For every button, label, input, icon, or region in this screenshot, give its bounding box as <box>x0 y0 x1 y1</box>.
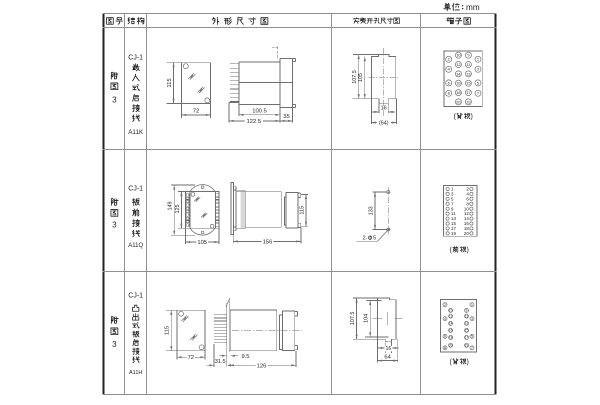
svg-text:3: 3 <box>471 317 473 321</box>
svg-text:9: 9 <box>466 309 468 313</box>
svg-text:72: 72 <box>193 109 199 115</box>
svg-text:15: 15 <box>465 329 469 333</box>
svg-text:125: 125 <box>175 205 181 214</box>
svg-text:mm: mm <box>466 3 480 12</box>
svg-text:8: 8 <box>444 346 446 350</box>
svg-text:1: 1 <box>477 57 479 62</box>
svg-text:3: 3 <box>112 95 117 104</box>
svg-text:1: 1 <box>471 303 473 307</box>
svg-text:104: 104 <box>363 314 369 323</box>
svg-text:5: 5 <box>471 335 473 339</box>
svg-text:133: 133 <box>368 206 374 215</box>
svg-text:100.5: 100.5 <box>252 108 267 114</box>
svg-text:A11Q: A11Q <box>128 243 143 249</box>
svg-text:107.5: 107.5 <box>350 312 356 326</box>
svg-text:16: 16 <box>381 105 387 111</box>
svg-text:15: 15 <box>466 81 470 86</box>
svg-text:18: 18 <box>449 336 453 340</box>
svg-text:12: 12 <box>449 314 453 318</box>
svg-text:A11K: A11K <box>128 129 144 136</box>
svg-text:115: 115 <box>167 78 173 87</box>
svg-text:72: 72 <box>188 355 194 361</box>
svg-text:CJ-1: CJ-1 <box>128 55 143 62</box>
svg-text:19: 19 <box>465 344 469 348</box>
svg-text:107.5: 107.5 <box>352 70 358 84</box>
svg-text:13: 13 <box>465 322 469 326</box>
svg-text:(64): (64) <box>379 121 389 127</box>
svg-text:115: 115 <box>299 206 305 215</box>
svg-text:9: 9 <box>467 53 469 58</box>
svg-text:5: 5 <box>373 235 376 241</box>
svg-text:3: 3 <box>112 221 117 230</box>
svg-text:6: 6 <box>444 335 446 339</box>
svg-text:7: 7 <box>477 91 479 96</box>
svg-text:126: 126 <box>257 363 267 369</box>
svg-text:14: 14 <box>449 322 453 326</box>
svg-text:): ) <box>467 359 469 366</box>
svg-text:8: 8 <box>448 91 450 96</box>
svg-text:3: 3 <box>112 340 117 349</box>
svg-text:105: 105 <box>197 240 207 246</box>
svg-text:19: 19 <box>466 99 470 104</box>
svg-text:2: 2 <box>448 57 450 62</box>
svg-text:19: 19 <box>451 231 456 236</box>
svg-text:7: 7 <box>471 346 473 350</box>
svg-text:A11H: A11H <box>129 370 142 376</box>
svg-text:10: 10 <box>449 309 453 313</box>
svg-text:11: 11 <box>465 314 469 318</box>
svg-text:13: 13 <box>466 71 470 76</box>
svg-text:16: 16 <box>456 81 460 86</box>
svg-text:35: 35 <box>283 114 289 120</box>
svg-text:122.5: 122.5 <box>247 119 262 125</box>
svg-text:3: 3 <box>477 67 479 72</box>
svg-text:115: 115 <box>165 326 171 335</box>
svg-text:6: 6 <box>448 80 450 85</box>
svg-text:18: 18 <box>456 90 460 95</box>
svg-text:105: 105 <box>358 73 364 82</box>
svg-text:20: 20 <box>449 344 453 348</box>
svg-text:149: 149 <box>168 202 174 211</box>
svg-text:17: 17 <box>466 90 470 95</box>
svg-text:5: 5 <box>477 80 479 85</box>
svg-text:16: 16 <box>449 329 453 333</box>
svg-text:17: 17 <box>465 336 469 340</box>
svg-text:20: 20 <box>464 231 469 236</box>
svg-text:31.5: 31.5 <box>215 359 226 365</box>
svg-text:11: 11 <box>466 62 470 67</box>
svg-text:64: 64 <box>384 355 391 361</box>
svg-text:2-: 2- <box>363 235 368 241</box>
svg-text:): ) <box>471 114 473 121</box>
svg-text:CJ-1: CJ-1 <box>128 293 143 300</box>
svg-text:CJ-1: CJ-1 <box>128 186 143 193</box>
svg-text:16: 16 <box>386 346 392 352</box>
svg-text:4: 4 <box>444 317 446 321</box>
svg-text:2: 2 <box>444 303 446 307</box>
svg-text:9.5: 9.5 <box>241 354 249 360</box>
svg-text:156: 156 <box>263 239 273 245</box>
svg-text:): ) <box>467 247 469 254</box>
svg-text:12: 12 <box>456 62 460 67</box>
